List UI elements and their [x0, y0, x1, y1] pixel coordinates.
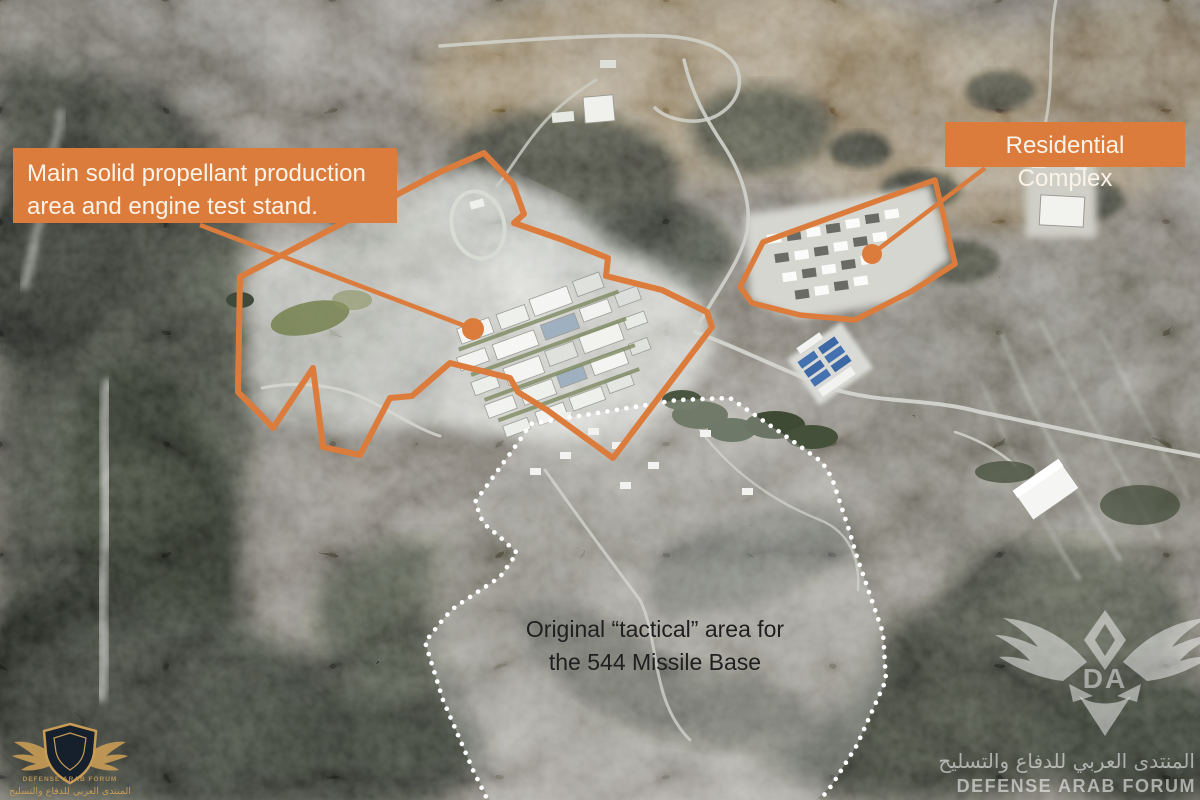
label-residential-text: Residential Complex	[1006, 132, 1125, 192]
label-tactical-line1: Original “tactical” area for	[505, 613, 805, 646]
label-production-line1: Main solid propellant production	[27, 157, 383, 190]
watermark-initials: DA	[1083, 663, 1127, 694]
annotated-satellite-view: DA المنتدى العربي للدفاع والتسليح DEFENS…	[0, 0, 1200, 800]
corner-logo-english: DEFENSE ARAB FORUM	[23, 776, 118, 783]
watermark-arabic-text: المنتدى العربي للدفاع والتسليح	[938, 749, 1195, 774]
residential-leader-dot	[862, 244, 882, 264]
label-tactical-area: Original “tactical” area for the 544 Mis…	[505, 613, 805, 679]
label-production-area: Main solid propellant production area an…	[13, 148, 397, 223]
satellite-image: DA المنتدى العربي للدفاع والتسليح DEFENS…	[0, 0, 1200, 800]
label-production-line2: area and engine test stand.	[27, 190, 383, 223]
watermark-english-text: DEFENSE ARAB FORUM	[957, 776, 1196, 796]
production-leader-dot	[462, 318, 484, 340]
corner-logo-arabic: المنتدى العربي للدفاع والتسليح	[9, 786, 131, 797]
label-residential-complex: Residential Complex	[945, 122, 1185, 167]
label-tactical-line2: the 544 Missile Base	[505, 646, 805, 679]
